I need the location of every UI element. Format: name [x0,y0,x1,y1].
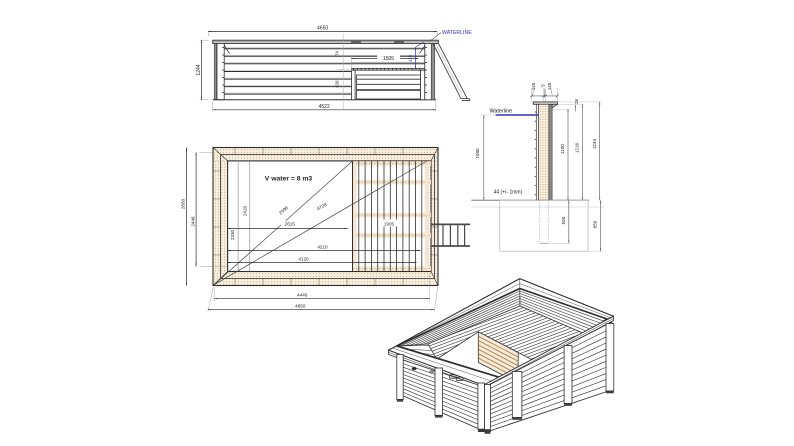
svg-text:1080: 1080 [475,148,480,159]
svg-text:1216: 1216 [575,142,580,153]
svg-text:4650: 4650 [317,26,328,32]
svg-text:1244: 1244 [196,64,202,75]
svg-text:V water = 8 m3: V water = 8 m3 [265,176,313,183]
svg-text:550: 550 [561,216,566,224]
svg-text:28: 28 [574,99,579,104]
svg-text:2650: 2650 [181,198,186,209]
svg-text:2330: 2330 [230,229,235,240]
svg-text:650: 650 [593,220,598,228]
svg-text:145: 145 [531,82,536,90]
svg-text:2446: 2446 [190,216,195,227]
svg-text:628: 628 [334,80,339,88]
svg-text:4446: 4446 [297,293,308,298]
svg-text:4210: 4210 [317,245,328,250]
svg-text:410: 410 [408,54,413,62]
svg-text:44 (+/- 1mm): 44 (+/- 1mm) [494,189,523,195]
svg-text:1150: 1150 [560,144,565,154]
svg-text:145: 145 [547,82,552,90]
svg-text:4650: 4650 [295,304,306,309]
svg-text:Waterline: Waterline [490,108,513,114]
svg-text:1244: 1244 [592,138,597,149]
svg-text:4120: 4120 [298,257,309,262]
svg-text:1905: 1905 [384,221,395,226]
svg-text:WATERLINE: WATERLINE [442,30,472,36]
svg-text:74: 74 [334,51,339,56]
svg-text:2410: 2410 [242,205,247,216]
svg-text:1505: 1505 [383,56,394,62]
svg-text:4522: 4522 [319,104,330,110]
svg-text:2615: 2615 [285,222,296,227]
